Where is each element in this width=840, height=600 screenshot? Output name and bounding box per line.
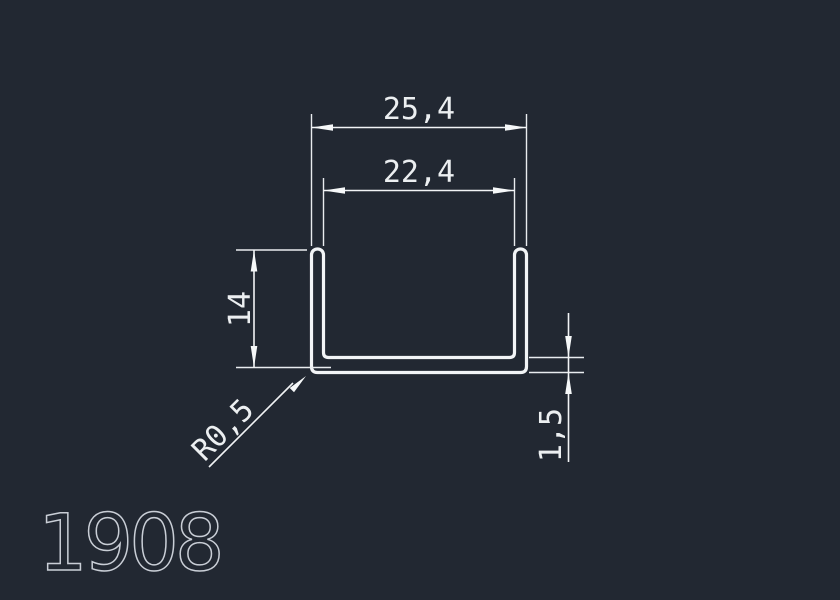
dim-wall-thickness-label: 1,5 — [534, 408, 569, 462]
cad-drawing: 25,4 22,4 14 1,5 R0,5 1908 — [0, 0, 840, 600]
part-number: 1908 — [38, 499, 221, 589]
dim-outer-width-label: 25,4 — [383, 92, 455, 127]
dim-inner-width-label: 22,4 — [383, 155, 455, 190]
drawing-canvas: 25,4 22,4 14 1,5 R0,5 1908 — [0, 0, 840, 600]
dim-height-label: 14 — [223, 291, 258, 327]
